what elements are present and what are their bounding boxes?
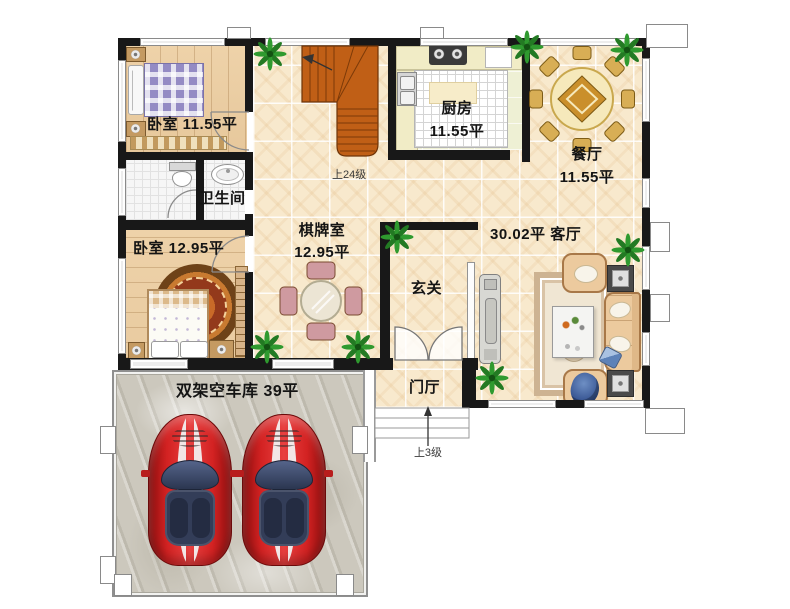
column-pier	[227, 27, 251, 39]
car-mirror	[324, 470, 333, 477]
wall-segment	[380, 222, 478, 230]
column-pier	[352, 426, 368, 454]
column-pier	[114, 574, 132, 596]
armchair	[562, 253, 607, 293]
label-chess-area: 12.95平	[285, 245, 359, 262]
sports-car	[242, 414, 326, 566]
column-pier	[645, 408, 685, 434]
window	[118, 168, 126, 216]
car-mirror	[235, 470, 244, 477]
note-stairs-count: 上24级	[332, 166, 366, 182]
window	[642, 178, 650, 208]
car-hood-vents	[266, 427, 302, 447]
bed-pillow	[151, 341, 179, 358]
window	[642, 332, 650, 366]
bedside-rug	[130, 136, 227, 150]
column-pier	[650, 222, 670, 252]
note-steps-count: 上3级	[403, 444, 453, 460]
window	[265, 38, 350, 46]
sports-car	[148, 414, 232, 566]
side-table	[607, 265, 634, 292]
nightstand	[126, 47, 146, 62]
label-kitchen-area: 11.55平	[418, 124, 496, 141]
wall-segment	[118, 220, 253, 230]
coffee-table	[552, 306, 594, 358]
label-chess-name: 棋牌室	[285, 223, 359, 240]
car-hood-vents	[172, 427, 208, 447]
window	[420, 38, 508, 46]
window	[118, 60, 126, 142]
label-bedroom2: 卧室 12.95平	[133, 241, 224, 258]
wall-segment	[522, 38, 530, 162]
label-garage: 双架空车库 39平	[176, 383, 299, 401]
bed-pillow	[180, 341, 208, 358]
label-living: 30.02平 客厅	[490, 227, 581, 244]
window	[130, 359, 188, 369]
column-pier	[100, 426, 116, 454]
column-pier	[336, 574, 354, 596]
wall-segment	[245, 160, 253, 190]
column-pier	[646, 24, 688, 48]
column-pier	[650, 294, 670, 322]
stove	[429, 43, 467, 65]
washbasin	[211, 164, 244, 185]
side-table	[607, 370, 634, 397]
label-dining-name: 餐厅	[557, 147, 617, 164]
wall-segment	[380, 222, 390, 358]
window	[642, 246, 650, 290]
bed-pillow	[128, 65, 144, 115]
bed	[144, 63, 204, 117]
wall-segment	[245, 214, 253, 236]
wall-segment	[245, 272, 253, 358]
wall-segment	[388, 38, 396, 160]
label-dining-area: 11.55平	[548, 170, 626, 187]
label-bedroom1: 卧室 11.55平	[147, 117, 237, 134]
window	[584, 400, 644, 408]
car-cabin	[259, 490, 309, 546]
window	[272, 359, 334, 369]
window	[642, 58, 650, 122]
nightstand	[209, 340, 234, 360]
toilet	[169, 162, 196, 188]
window	[140, 38, 225, 46]
entrance-steps	[375, 406, 469, 446]
car-cabin	[165, 490, 215, 546]
car-mirror	[141, 470, 150, 477]
wall-segment	[388, 150, 510, 160]
kitchen-sink	[397, 72, 417, 106]
window	[488, 400, 556, 408]
window	[540, 38, 636, 46]
nightstand	[126, 121, 146, 137]
entry-partition	[467, 262, 475, 360]
label-bathroom: 卫生间	[199, 191, 246, 208]
floor-plan: 卧室 11.55平 卫生间 卧室 12.95平 厨房 11.55平 餐厅 11.…	[0, 0, 790, 609]
label-foyer: 门厅	[409, 380, 440, 397]
tv-cabinet	[479, 274, 501, 364]
window	[118, 258, 126, 354]
wall-segment	[118, 152, 253, 160]
kitchen-appliance	[485, 47, 512, 68]
label-entry: 玄关	[411, 281, 442, 298]
label-kitchen-name: 厨房	[423, 101, 491, 118]
wall-segment	[245, 46, 253, 112]
